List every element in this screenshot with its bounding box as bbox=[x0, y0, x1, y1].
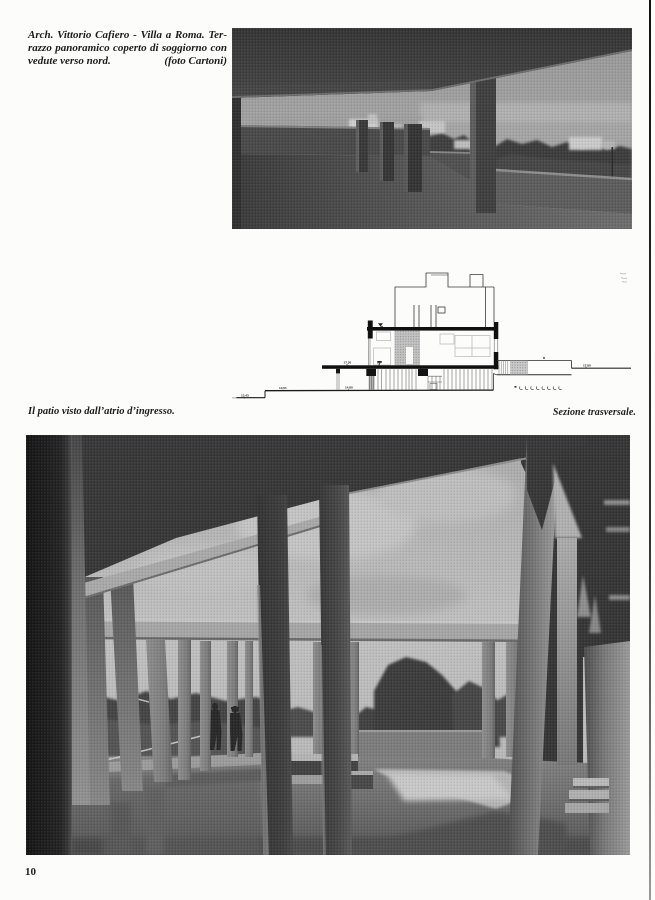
svg-text:B: B bbox=[543, 356, 546, 360]
svg-text:17.80: 17.80 bbox=[583, 363, 591, 367]
svg-text:17.30: 17.30 bbox=[344, 361, 352, 365]
svg-text:14.51: 14.51 bbox=[279, 386, 287, 390]
svg-text:14.80: 14.80 bbox=[345, 386, 353, 390]
svg-text:13.43: 13.43 bbox=[241, 394, 249, 398]
